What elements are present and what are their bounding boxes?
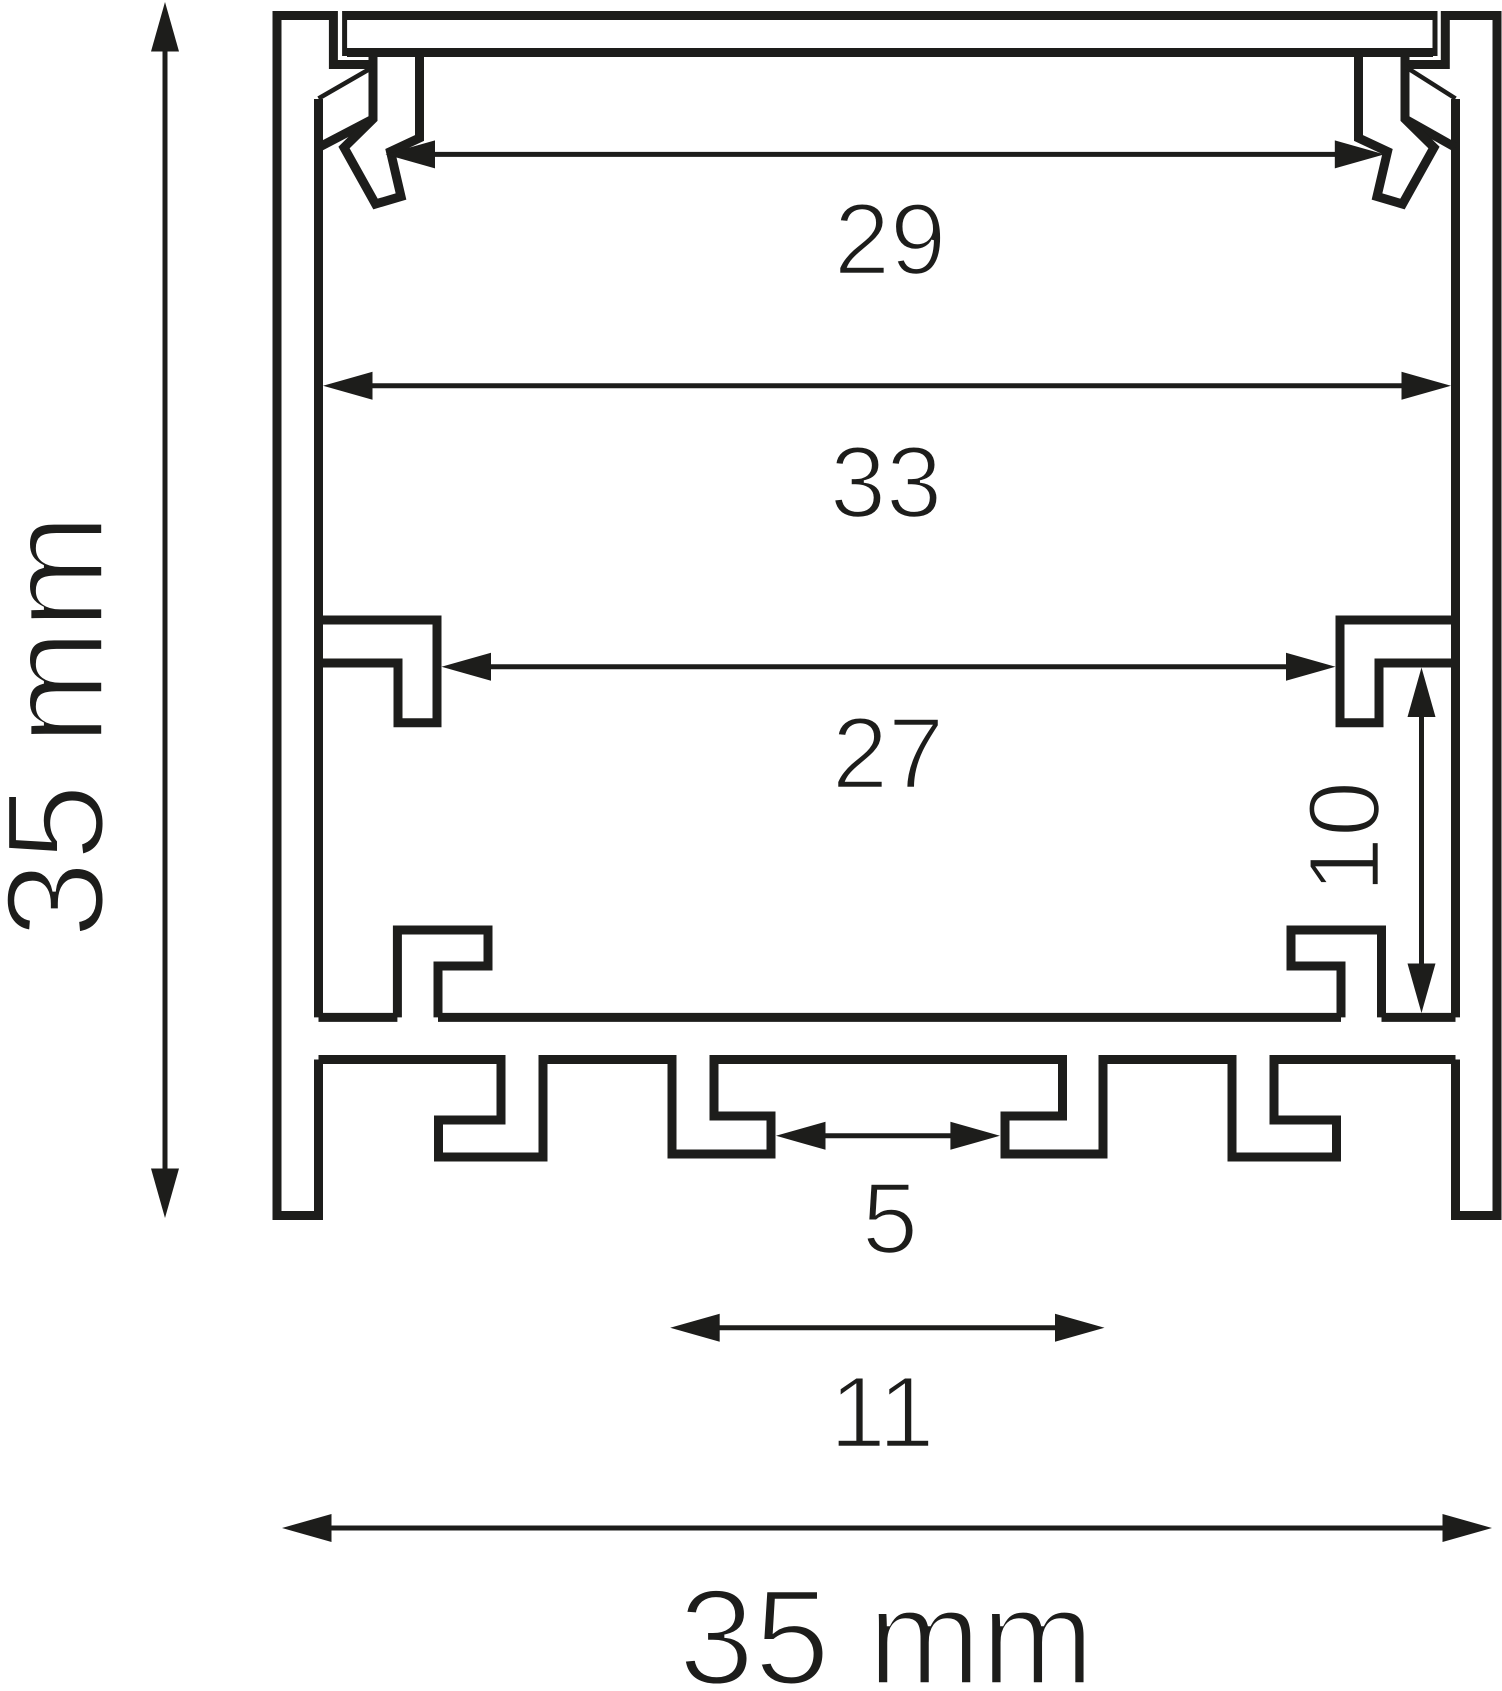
svg-text:35 mm: 35 mm [0, 514, 133, 939]
svg-text:33: 33 [830, 427, 942, 539]
svg-text:29: 29 [834, 184, 946, 296]
svg-text:11: 11 [830, 1357, 935, 1469]
svg-text:10: 10 [1289, 781, 1401, 893]
svg-text:5: 5 [862, 1163, 918, 1275]
svg-text:27: 27 [832, 698, 944, 810]
svg-text:35 mm: 35 mm [679, 1561, 1095, 1691]
